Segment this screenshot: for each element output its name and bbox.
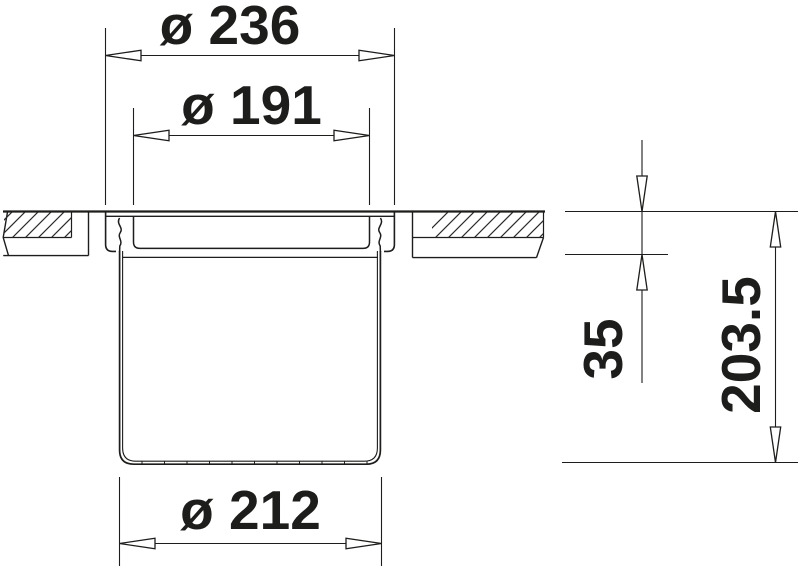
countertop-left-section <box>0 208 94 256</box>
dimension-counter-thickness <box>637 140 647 383</box>
label-total-depth: 203.5 <box>714 245 770 445</box>
spring-clip-left <box>118 218 121 252</box>
label-flange-outer-diameter: ø 236 <box>105 0 355 53</box>
container-body <box>3 212 545 465</box>
inner-collar <box>134 217 370 248</box>
arrow-down-icon <box>637 176 647 212</box>
arrow-right-icon <box>359 50 395 61</box>
bucket-outer-wall <box>120 251 381 464</box>
label-counter-thickness: 35 <box>576 299 632 399</box>
technical-drawing: ø 236 ø 191 ø 212 35 203.5 <box>0 0 800 569</box>
bucket-inner-wall <box>123 251 378 461</box>
hatch-pattern-right <box>420 208 569 240</box>
countertop-right-section <box>413 208 570 258</box>
spring-clip-right <box>379 218 382 252</box>
arrow-up-icon <box>637 255 647 291</box>
arrow-left-icon <box>120 538 156 549</box>
flange-hook-right <box>384 212 394 251</box>
arrow-up-icon <box>770 212 780 248</box>
arrow-down-icon <box>770 427 780 463</box>
label-opening-inner-diameter: ø 191 <box>133 78 370 133</box>
flange-hook-left <box>106 212 116 251</box>
label-base-diameter: ø 212 <box>119 483 382 538</box>
hatch-pattern-left <box>0 208 94 240</box>
arrow-right-icon <box>346 538 382 549</box>
